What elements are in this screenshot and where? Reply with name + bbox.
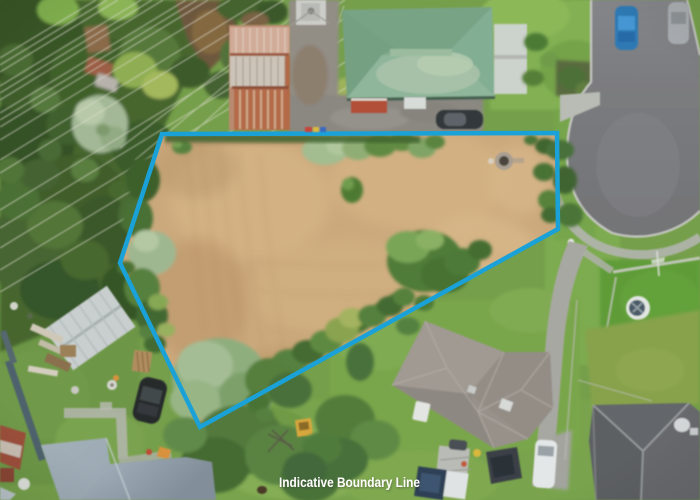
svg-text:Indicative Boundary Line: Indicative Boundary Line xyxy=(279,475,420,490)
